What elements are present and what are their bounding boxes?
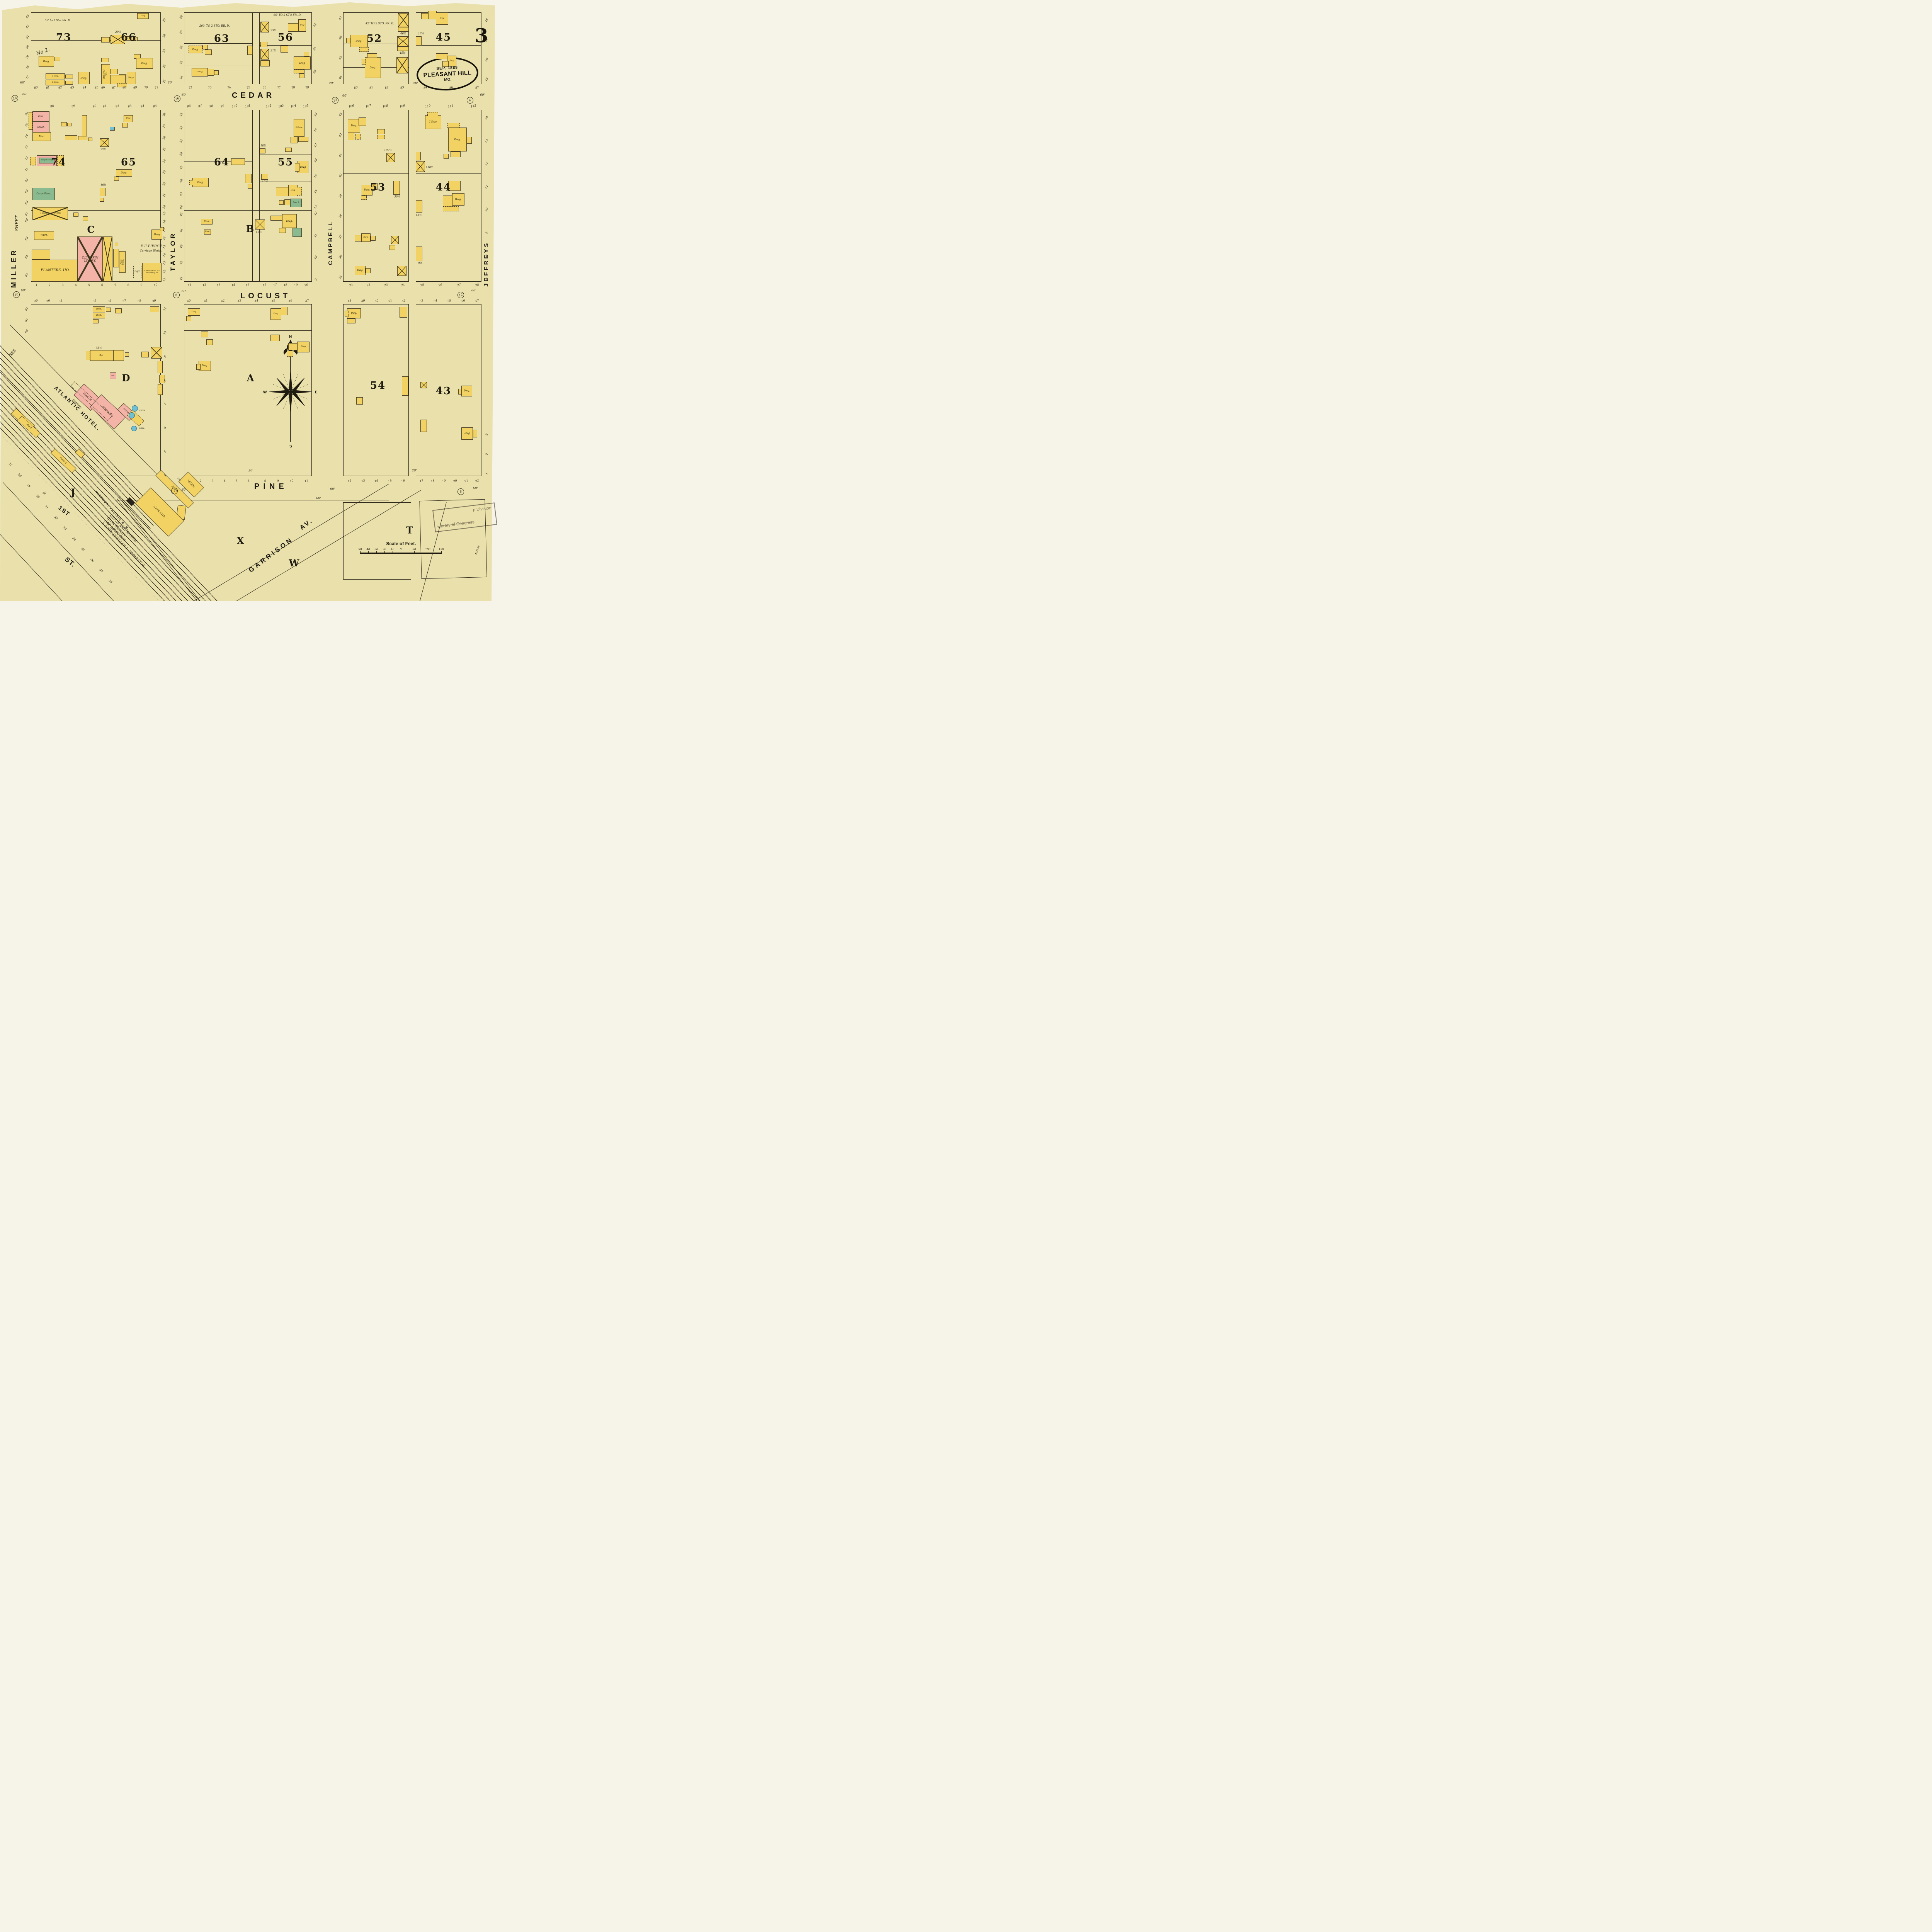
area-label-j: J bbox=[71, 487, 75, 498]
building bbox=[82, 115, 87, 138]
lot-number: 7 bbox=[114, 283, 117, 287]
lot-number: 29 bbox=[34, 299, 38, 303]
building-label: W.RM. bbox=[34, 231, 54, 240]
building-2-dwg: 2 Dwg. bbox=[46, 73, 65, 79]
building-label: Dwg. bbox=[355, 266, 365, 275]
building bbox=[248, 184, 252, 189]
building-label: Dwg. bbox=[347, 309, 361, 318]
building bbox=[288, 343, 298, 350]
lot-number: 64 bbox=[24, 254, 29, 259]
map-line bbox=[259, 12, 260, 84]
map-annotation: 60' bbox=[316, 497, 321, 500]
building bbox=[467, 137, 472, 144]
map-line bbox=[343, 173, 409, 174]
building-label: Dwg bbox=[289, 185, 297, 196]
lot-number: 8 bbox=[485, 254, 488, 257]
building bbox=[361, 196, 367, 200]
lot-number: 11 bbox=[484, 184, 489, 189]
map-line bbox=[260, 155, 312, 155]
lot-number: 41 bbox=[179, 276, 184, 281]
building bbox=[205, 49, 212, 55]
building bbox=[397, 266, 406, 276]
lot-number: 64 bbox=[82, 85, 87, 90]
sanborn-map-sheet: N W E S SEP. 1888 PLEASANT HILL MO. 3 p … bbox=[0, 0, 507, 601]
lot-number-row: 72737475 bbox=[189, 86, 250, 89]
lot-number-column: 83828180797877 bbox=[26, 15, 29, 79]
lot-number: 25 bbox=[162, 79, 167, 84]
building-dwg: Dwg. bbox=[189, 46, 202, 53]
lot-number: 13 bbox=[216, 283, 221, 287]
building bbox=[285, 148, 292, 152]
lot-number-row: 9192939495 bbox=[103, 104, 157, 108]
building-rest: Rest. bbox=[93, 306, 105, 312]
lot-number: 12 bbox=[202, 283, 206, 287]
map-annotation: 21½ bbox=[270, 49, 277, 53]
lot-number: 56 bbox=[179, 45, 184, 50]
lot-number: 51 bbox=[388, 299, 392, 303]
lot-number: 58 bbox=[179, 15, 184, 20]
lot-number: 21 bbox=[349, 283, 353, 287]
building bbox=[427, 112, 438, 116]
building bbox=[260, 49, 269, 60]
lot-number: 90 bbox=[92, 104, 97, 108]
lot-number: 42 bbox=[179, 260, 184, 265]
building bbox=[100, 198, 104, 202]
building bbox=[294, 70, 304, 73]
map-annotation: SHEET bbox=[15, 215, 19, 231]
building-dwg: Dwg bbox=[288, 185, 298, 196]
street-label-cedar: CEDAR bbox=[232, 91, 275, 100]
lot-number: 111 bbox=[447, 104, 454, 108]
building bbox=[281, 307, 287, 315]
lot-number: 20 bbox=[453, 479, 457, 483]
building bbox=[287, 351, 293, 357]
lot-number-column: 282726252423222120 bbox=[162, 113, 166, 209]
lot-number-column: 222120 bbox=[313, 23, 317, 73]
building bbox=[101, 37, 110, 43]
lot-number: 18 bbox=[162, 219, 167, 224]
building bbox=[65, 135, 77, 140]
building-t-j-turpin-livery: T.J.TURPIN LIVERY. bbox=[77, 236, 103, 282]
lot-number-row: 4849505152 bbox=[348, 299, 406, 303]
building bbox=[400, 307, 407, 318]
map-annotation: CISTN bbox=[139, 410, 145, 412]
lot-number: 17 bbox=[419, 479, 423, 483]
lot-number: 108 bbox=[382, 104, 388, 108]
building bbox=[158, 384, 163, 395]
building-label: Dwg. bbox=[452, 194, 464, 205]
block-number-43: 43 bbox=[436, 385, 451, 397]
lot-number: 76 bbox=[24, 111, 29, 116]
building-2-dwg: 2 Dwg. bbox=[192, 68, 208, 77]
lot-number: 41 bbox=[338, 153, 343, 158]
building-label: Carpr Shop. bbox=[33, 188, 54, 200]
building-label: Paint Shop. bbox=[112, 259, 133, 265]
building-j-cornman-livery: ½ J.CORNMAN LIVERY. bbox=[32, 207, 68, 220]
building bbox=[297, 187, 302, 196]
map-line bbox=[416, 76, 429, 76]
building bbox=[106, 308, 111, 312]
lot-number: 2 bbox=[199, 479, 202, 483]
building bbox=[451, 151, 461, 157]
lot-number-row: 110111112 bbox=[425, 104, 476, 108]
building bbox=[371, 236, 376, 241]
lot-number: 11 bbox=[304, 479, 308, 483]
lot-number-row: 171819202122 bbox=[420, 479, 479, 483]
block-number-53: 53 bbox=[370, 182, 386, 193]
lot-number: 27 bbox=[457, 283, 461, 287]
building-label: Dwg. bbox=[462, 386, 472, 396]
lot-number: 28 bbox=[475, 283, 480, 287]
map-annotation: 20' bbox=[168, 81, 172, 85]
map-block bbox=[343, 502, 411, 580]
lot-number: 72 bbox=[188, 85, 192, 90]
lot-number-row: 5354555657 bbox=[420, 299, 479, 303]
lot-number: 26 bbox=[162, 64, 167, 69]
building bbox=[398, 27, 409, 32]
lot-number: 69 bbox=[24, 189, 29, 194]
lot-number: 55 bbox=[179, 60, 184, 65]
lot-number: 20 bbox=[162, 204, 167, 209]
building bbox=[284, 199, 290, 205]
lot-number: 10 bbox=[484, 207, 489, 212]
building bbox=[362, 59, 366, 65]
lot-number: 61 bbox=[46, 85, 50, 90]
building-dwg: Dwg. bbox=[204, 230, 211, 235]
map-annotation: 60' bbox=[471, 289, 476, 293]
map-annotation: 12½ bbox=[256, 231, 262, 234]
building bbox=[65, 81, 73, 85]
lot-number: 14 bbox=[484, 115, 489, 120]
lot-number: 109 bbox=[399, 104, 405, 108]
lot-number: 42 bbox=[338, 133, 343, 138]
lot-number: 22 bbox=[475, 479, 480, 483]
building bbox=[122, 123, 128, 128]
building bbox=[158, 361, 163, 373]
map-annotation: 20' bbox=[329, 82, 333, 85]
lot-number: 75 bbox=[24, 122, 29, 128]
map-annotation: 23½ bbox=[270, 29, 277, 32]
building-label: Dwg bbox=[294, 57, 310, 69]
building bbox=[115, 243, 118, 246]
lot-number: 4 bbox=[75, 283, 77, 287]
lot-number: 82 bbox=[384, 85, 389, 90]
lot-number: 21 bbox=[313, 46, 317, 51]
building-label: Dwg bbox=[188, 309, 200, 315]
building-label: Gro. bbox=[33, 112, 49, 121]
building-label: Dwg bbox=[271, 309, 281, 320]
lot-number: 76 bbox=[262, 85, 267, 90]
lot-number: 37 bbox=[122, 299, 126, 303]
building bbox=[78, 136, 87, 140]
lot-number: 43 bbox=[237, 299, 241, 303]
lot-number: 86 bbox=[449, 85, 453, 90]
lot-number: 2 bbox=[48, 283, 51, 287]
building-label: Dwg. bbox=[199, 361, 211, 371]
lot-number: 6 bbox=[247, 479, 250, 483]
building-dwg: Dwg bbox=[298, 19, 306, 32]
building bbox=[355, 134, 361, 139]
building bbox=[397, 36, 409, 46]
lot-number-row: 4041424344454647 bbox=[187, 299, 309, 303]
lot-number-row: 666768697071 bbox=[101, 86, 158, 89]
building-dwg: Dwg bbox=[270, 308, 281, 320]
building-label: Dwg. bbox=[189, 46, 202, 53]
building-dwg: Dwg. bbox=[201, 219, 213, 224]
street-label-miller: MILLER bbox=[10, 248, 18, 288]
lot-number: 19 bbox=[162, 211, 167, 216]
lot-number: 71 bbox=[24, 167, 29, 172]
building bbox=[189, 180, 193, 185]
building-vac: Vac. bbox=[32, 132, 51, 141]
building bbox=[54, 57, 60, 61]
lot-number: 100 bbox=[231, 104, 238, 108]
lot-number-column: 18171615 bbox=[485, 19, 488, 81]
lot-number: 80 bbox=[354, 85, 358, 90]
lot-number: 62 bbox=[24, 306, 29, 311]
lot-number-row: 1617181920 bbox=[263, 283, 308, 287]
lot-number: 93 bbox=[128, 104, 132, 108]
lot-number-row: 891011 bbox=[264, 479, 308, 483]
map-annotation: 22½ bbox=[100, 148, 107, 151]
building-label: ½ J.CORNMAN LIVERY. bbox=[33, 207, 68, 220]
compass-east-label: E bbox=[315, 390, 318, 395]
lot-number: 45 bbox=[338, 55, 343, 60]
map-block bbox=[419, 499, 487, 579]
lot-number-row: 21222324 bbox=[349, 283, 405, 287]
lot-number-row: 76777879 bbox=[263, 86, 309, 89]
building bbox=[103, 236, 112, 282]
map-annotation: 17½ bbox=[418, 32, 424, 36]
map-annotation: 16½ bbox=[262, 180, 268, 183]
building-label: 2 Dwg. bbox=[46, 74, 65, 79]
lot-number: 10 bbox=[153, 283, 158, 287]
lot-number: 51 bbox=[179, 138, 184, 143]
lot-number: 65 bbox=[24, 236, 29, 241]
lot-number: 22 bbox=[366, 283, 371, 287]
map-annotation: 109½ bbox=[384, 149, 392, 152]
area-label-t: T bbox=[406, 525, 413, 536]
lot-number: 14 bbox=[231, 283, 235, 287]
building bbox=[345, 311, 349, 316]
lot-number-row: 888990 bbox=[50, 104, 97, 108]
lot-number: 84 bbox=[423, 85, 427, 90]
lot-number: 106 bbox=[348, 104, 354, 108]
lot-number: 11 bbox=[162, 277, 167, 282]
building bbox=[208, 69, 214, 76]
building bbox=[428, 11, 437, 19]
building bbox=[298, 137, 308, 142]
map-annotation: 60' bbox=[182, 290, 186, 293]
lot-number: 9 bbox=[163, 355, 167, 358]
lot-number: 83 bbox=[25, 14, 30, 19]
lot-number: 31 bbox=[58, 299, 63, 303]
lot-number: 39 bbox=[338, 194, 343, 199]
building-label: Dwg. bbox=[39, 56, 54, 66]
lot-number: 105 bbox=[303, 104, 309, 108]
lot-number: 22 bbox=[313, 22, 317, 27]
building bbox=[67, 123, 71, 126]
lot-number: 54 bbox=[433, 299, 437, 303]
lot-number: 41 bbox=[204, 299, 208, 303]
lot-number: 9 bbox=[485, 231, 488, 234]
lot-number: 75 bbox=[246, 85, 250, 90]
lot-number: 38 bbox=[137, 299, 141, 303]
building-dwg: Dwg. bbox=[347, 308, 361, 318]
lot-number: 69 bbox=[133, 85, 137, 90]
building-label: Dwg bbox=[124, 116, 133, 122]
lot-number: 50 bbox=[179, 152, 184, 157]
building-label: Dwg. bbox=[350, 35, 367, 47]
building-label: Dwg. bbox=[365, 58, 381, 78]
building bbox=[202, 45, 208, 49]
building bbox=[73, 213, 78, 217]
building-platf-2o: PLATF. 2o bbox=[133, 266, 141, 278]
building-label: 2 Dwg. bbox=[294, 119, 304, 136]
lot-number: 7 bbox=[485, 277, 488, 280]
lot-number: 70 bbox=[24, 178, 29, 183]
lot-number: 72 bbox=[24, 156, 29, 161]
building-label: 2 Dwg. bbox=[46, 80, 65, 85]
building bbox=[386, 153, 395, 162]
lot-number: 48 bbox=[179, 178, 184, 183]
lot-number-row: 3536373839 bbox=[93, 299, 156, 303]
building-w-rm: W.RM. bbox=[34, 231, 54, 240]
lot-number: 87 bbox=[475, 85, 479, 90]
lot-number: 57 bbox=[475, 299, 479, 303]
map-line bbox=[184, 330, 312, 331]
lot-number: 1 bbox=[35, 283, 38, 287]
building bbox=[255, 219, 265, 230]
lot-number: 15 bbox=[388, 479, 392, 483]
building bbox=[359, 117, 366, 126]
building bbox=[186, 316, 191, 321]
lot-number: 57 bbox=[179, 30, 184, 35]
street-label-taylor: TAYLOR bbox=[169, 231, 177, 271]
area-label-a: A bbox=[247, 372, 254, 384]
lot-number: 73 bbox=[24, 145, 29, 150]
lot-number: 47 bbox=[338, 15, 343, 20]
lot-number: 98 bbox=[209, 104, 213, 108]
map-line bbox=[184, 395, 312, 395]
lot-number: 68 bbox=[24, 200, 29, 205]
building bbox=[261, 174, 268, 180]
building-dwg: Dwg. bbox=[39, 56, 54, 67]
lot-number: 6 bbox=[163, 426, 167, 429]
lot-number-column: 47464544 bbox=[338, 16, 342, 79]
lot-number: 26 bbox=[439, 283, 443, 287]
building bbox=[436, 53, 448, 59]
lot-number: 8 bbox=[264, 479, 267, 483]
lot-number: 4 bbox=[223, 479, 226, 483]
building bbox=[416, 36, 422, 46]
lot-number: 17 bbox=[273, 283, 277, 287]
building-label: Dwg 2 bbox=[291, 199, 301, 207]
building-label: T.J.TURPIN LIVERY. bbox=[78, 237, 102, 281]
lot-number: 15 bbox=[313, 173, 318, 179]
lot-number: 53 bbox=[179, 112, 184, 117]
lot-number: 67 bbox=[24, 211, 29, 216]
block-number-74: 74 bbox=[51, 156, 66, 168]
building bbox=[348, 133, 354, 140]
lot-number: 24 bbox=[401, 283, 405, 287]
lot-number: 5 bbox=[235, 479, 238, 483]
map-annotation: 60' bbox=[22, 93, 27, 96]
building bbox=[214, 70, 219, 75]
building bbox=[61, 122, 67, 126]
building bbox=[279, 228, 286, 233]
building bbox=[100, 138, 109, 147]
map-annotation: 60' bbox=[480, 94, 485, 97]
building-label: Dwg. bbox=[193, 178, 208, 187]
map-annotation: 60' bbox=[330, 488, 335, 491]
map-line bbox=[252, 110, 253, 282]
building-label: Dwg. bbox=[204, 230, 211, 234]
street-label-campbell: CAMPBELL bbox=[327, 221, 334, 265]
lot-number-row: 102103104105 bbox=[266, 104, 308, 108]
building bbox=[366, 268, 371, 273]
map-annotation: 46½ bbox=[400, 32, 406, 36]
lot-number: 16 bbox=[162, 236, 167, 241]
building-dwg: Dwg. bbox=[361, 233, 371, 242]
lot-number: 7 bbox=[163, 403, 167, 406]
building-w-c: W.C. bbox=[110, 372, 116, 379]
building bbox=[444, 154, 449, 159]
building-meat: Meat. bbox=[32, 122, 49, 133]
lot-number: 18 bbox=[484, 18, 489, 23]
block-number-44: 44 bbox=[436, 182, 451, 193]
lot-number: 25 bbox=[162, 147, 167, 152]
building bbox=[367, 53, 377, 58]
building bbox=[416, 200, 422, 213]
lot-number: 53 bbox=[419, 299, 423, 303]
lot-number: 71 bbox=[154, 85, 158, 90]
building bbox=[83, 216, 88, 221]
map-line bbox=[343, 230, 409, 230]
building bbox=[443, 206, 459, 211]
building-label: Dwg bbox=[138, 14, 148, 19]
lot-number-row: 96979899100101 bbox=[187, 104, 250, 108]
lot-number: 11 bbox=[187, 283, 192, 287]
building bbox=[416, 161, 425, 172]
lot-number: 112 bbox=[470, 104, 476, 108]
lot-number: 12 bbox=[313, 211, 318, 216]
building bbox=[196, 364, 201, 370]
lot-number: 104 bbox=[290, 104, 296, 108]
lot-number: 45 bbox=[179, 212, 184, 217]
building bbox=[86, 351, 90, 360]
building-2-dwg: 2 Dwg. bbox=[46, 80, 65, 85]
lot-number: 29 bbox=[162, 18, 167, 23]
area-label-d: D bbox=[122, 372, 130, 384]
lot-number: 13 bbox=[361, 479, 365, 483]
building-paint-shop: Paint Shop. bbox=[119, 251, 126, 273]
lot-number: 6 bbox=[101, 283, 104, 287]
lot-number: 15 bbox=[484, 77, 489, 82]
lot-number-column: 321 bbox=[485, 433, 488, 475]
lot-number: 16 bbox=[401, 479, 405, 483]
lot-number: 80 bbox=[25, 44, 30, 49]
building bbox=[396, 57, 408, 73]
map-annotation: Carriage Works. bbox=[140, 250, 162, 253]
lot-number: 74 bbox=[24, 134, 29, 139]
lot-number: 81 bbox=[25, 34, 30, 39]
map-annotation: 60' bbox=[473, 487, 478, 490]
lot-number: 46 bbox=[288, 299, 293, 303]
map-annotation: 60' bbox=[20, 81, 25, 85]
lot-number: 1 bbox=[485, 472, 488, 475]
building-label: Dwgs. bbox=[127, 72, 136, 84]
